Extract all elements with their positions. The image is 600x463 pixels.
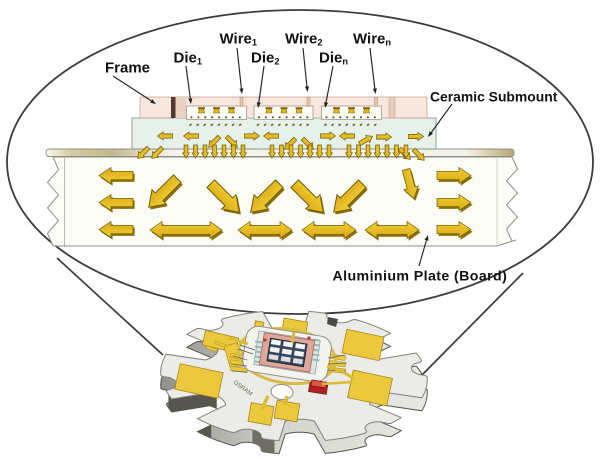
svg-text:Ceramic Submount: Ceramic Submount bbox=[430, 89, 558, 105]
svg-text:Wire2: Wire2 bbox=[285, 31, 323, 48]
svg-text:Aluminium Plate (Board): Aluminium Plate (Board) bbox=[333, 269, 508, 285]
svg-text:Wire1: Wire1 bbox=[220, 31, 258, 48]
svg-text:Frame: Frame bbox=[105, 60, 150, 77]
